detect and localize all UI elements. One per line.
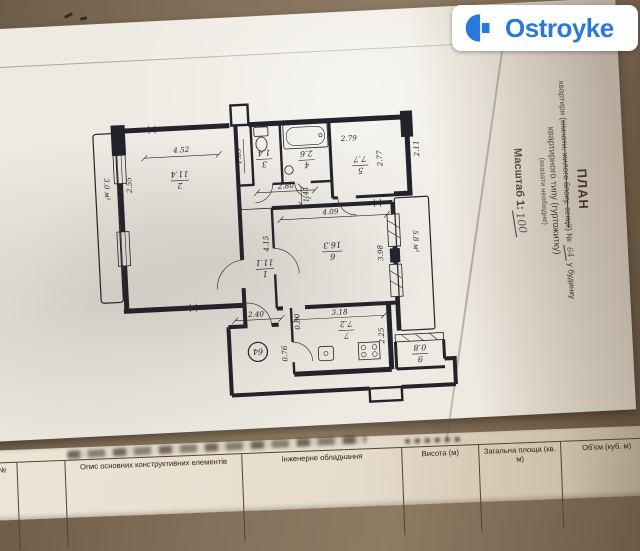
dim-2-40: 2.40 [247,309,265,319]
svg-text:0.8: 0.8 [413,342,426,352]
door-arc-room6 [274,247,299,274]
room-label-9: 9 0.8 [412,342,429,363]
dim-1-41: 1.41 [301,186,311,203]
dim-2-25: 2.25 [377,327,387,345]
scale-line: Масштаб 1:100 [505,52,533,332]
svg-text:7: 7 [343,331,349,340]
dim-4-52: 4.52 [172,145,190,155]
dim-2-55: 2.55 [124,176,134,194]
room-label-1: 1 11.1 [255,257,274,278]
col-blank [17,461,68,550]
pen-mark [80,16,87,20]
pillar [110,125,126,156]
dim-4-15: 4.15 [261,235,271,253]
dim-3-98: 3.98 [375,244,385,261]
room-label-7: 7 7.2 [338,319,355,340]
kitchen-sink-drain [324,351,328,355]
sink-icon [285,166,294,175]
photo-of-floorplan-document: { "logo": { "name": "Ostroyke", "color":… [0,0,640,480]
svg-text:2: 2 [177,181,184,190]
dim-0-76: 0.76 [280,345,290,362]
stove-burner [372,345,377,350]
bathtub-drain [319,133,322,136]
dim-1-65: 1.65 [234,148,244,165]
room-label-5: 5 7.7 [352,154,369,175]
window-hatch [390,270,403,289]
svg-text:11.4: 11.4 [170,169,188,179]
toilet-tank-icon [254,127,269,137]
col-engineering-equipment: Інженерне обладнання [242,448,405,541]
dim-2-80: 2.80 [276,181,294,191]
illegible-handwriting [405,437,463,444]
window-lines [117,155,122,183]
balcony-right-label: 5.8 м² [411,230,421,253]
room-label-6: 6 16.3 [322,240,343,262]
svg-text:16.3: 16.3 [323,240,341,250]
dim-line [243,139,245,173]
door-arc-room2 [216,260,244,289]
col-volume: Об'єм (куб. м) [561,438,640,528]
apartment-number: 64 [253,347,264,357]
svg-text:11.1: 11.1 [255,257,273,267]
svg-text:2.6: 2.6 [300,149,314,159]
dim-2-79: 2.79 [340,133,358,143]
dim-4-09: 4.09 [321,207,339,217]
struck-words: кімнати, жилого блоку, секції [559,120,573,228]
dim-3-18: 3.18 [331,307,348,317]
balcony-left-outline [93,133,124,303]
room-label-3: 3 1.4 [256,148,273,169]
ostroyke-logo-icon [464,11,498,45]
window [387,214,401,247]
stove-burner [361,352,366,357]
pillar [400,110,413,137]
pen-mark [64,12,73,19]
wall-entrance [228,325,282,396]
col-height: Висота (м) [402,445,482,535]
room-label-4: 4 2.6 [298,149,315,170]
apartment-number-handwritten: 64 [563,243,576,261]
svg-text:7.2: 7.2 [340,319,353,329]
window [389,264,403,297]
ostroyke-logo: Ostroyke [452,5,638,51]
window-hatch [387,220,400,239]
hall-line [240,208,272,210]
svg-text:6: 6 [330,252,336,261]
kitchen-sink-icon [318,346,334,361]
stair-landing [370,387,403,402]
svg-text:3: 3 [262,160,268,169]
dim-0-80: 0.80 [292,313,302,330]
svg-text:1: 1 [262,269,268,278]
vent-shaft [230,105,248,126]
lower-form-sheet: № Опис основних конструктивних елементів… [0,425,640,521]
dim-2-11: 2.11 [411,140,421,158]
room-label-2: 2 11.4 [170,169,189,190]
scale-value-handwritten: 100 [512,209,530,238]
stove-burner [372,352,377,357]
plan-title-block: ПЛАН квартири (кімнати, жилого блоку, се… [468,49,597,334]
col-total-area: Загальна площа (кв. м) [479,442,564,532]
stove-burner [361,345,366,350]
balcony-right-outline [394,196,435,330]
balcony-left-label: 3.0 м² [102,178,112,201]
door-arc-kitchen [293,341,313,362]
svg-text:9: 9 [418,354,424,363]
window [117,231,131,266]
ostroyke-logo-text: Ostroyke [505,13,614,44]
svg-text:5: 5 [358,166,364,175]
floorplan-drawing: 64 4.52 2.55 1.65 2.80 1.41 2.79 2.77 2.… [82,85,493,437]
wall-room5-left [329,121,333,198]
floorplan-sheet: ПЛАН квартири (кімнати, жилого блоку, се… [0,0,636,442]
dim-2-77: 2.77 [375,150,385,168]
wall-room2-bottom [124,305,245,311]
svg-text:1.4: 1.4 [257,148,270,158]
svg-text:4: 4 [304,160,311,169]
col-structural-elements: Опис основних конструктивних елементів [65,454,245,548]
door-arc-wc [254,184,273,203]
wall-block [390,248,401,263]
svg-text:7.7: 7.7 [352,154,366,164]
wall-room5-bottom [333,195,394,198]
